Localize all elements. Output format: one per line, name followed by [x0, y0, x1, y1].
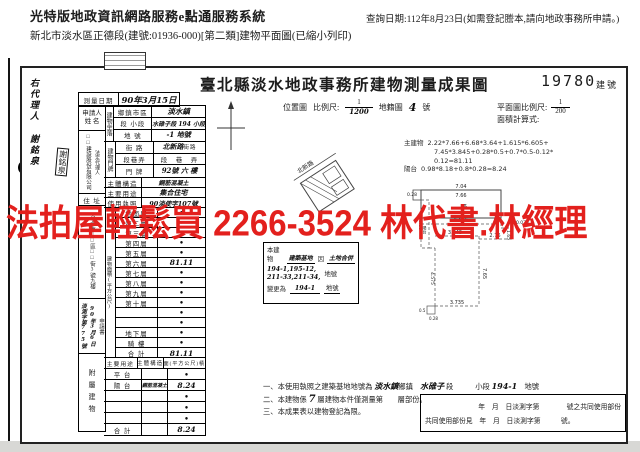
floor-row: •	[116, 308, 205, 318]
document-title: 臺北縣淡水地政事務所建物測量成果圖	[200, 73, 489, 95]
application-receipt-cell: 淡測字第775號 90年3月6日 申請書	[79, 299, 105, 354]
applicant-name-label: 姓 名	[85, 118, 100, 126]
receipt-no-label: 字第	[80, 314, 86, 325]
note-1-section-suffix: 段	[446, 382, 453, 391]
floor-name: 合 計	[116, 348, 158, 358]
note-3-text: 本成果表以建物登記為限。	[278, 407, 366, 416]
applicant-section-label: 申請人	[82, 110, 102, 118]
floor-name: 第八層	[116, 278, 158, 287]
scan-edge-line	[8, 58, 10, 442]
dim-label: 4.575	[429, 272, 435, 285]
floor-row: 第八層•	[116, 278, 205, 288]
system-title: 光特版地政資訊網路服務e點通服務系統	[30, 6, 266, 25]
floor-value: 81.11	[158, 348, 205, 358]
attached-row: •	[104, 413, 205, 424]
attached-structure	[142, 391, 168, 401]
scale-label: 比例尺:	[313, 102, 339, 113]
floor-name	[116, 318, 158, 327]
floor-name: 第六層	[116, 258, 158, 267]
cadastral-map-label: 地籍圖	[379, 102, 403, 113]
attached-structure	[142, 369, 168, 379]
calc-balcony-line: 0.98*8.18+0.8*0.28=8.24	[421, 165, 507, 174]
applicant-name-cell: □□建設股份有限公司 法定代理人	[79, 131, 105, 194]
door-street-label: 街 路	[116, 142, 154, 153]
applicant-column: 申請人 姓 名 □□建設股份有限公司 法定代理人 住 址 台北市□□區□□街3號…	[78, 105, 106, 432]
sheet-unit: 號	[422, 102, 430, 113]
floor-total-row: 合 計81.11	[116, 348, 205, 358]
floor-row: 第六層81.11	[116, 258, 205, 268]
attached-usage	[104, 402, 142, 412]
attached-usage: 陽 台	[104, 380, 142, 390]
scale-fraction: 1 1200	[345, 99, 372, 115]
attached-area: •	[168, 391, 205, 401]
applicant-header: 申請人 姓 名	[79, 106, 105, 131]
attached-area: 8.24	[168, 424, 205, 435]
plan-scale-row: 平面圖比例尺: 1 200	[497, 99, 570, 115]
receipt-no-unit: 號	[80, 343, 86, 349]
margin-agent-note: 右代理人 謝銘泉	[27, 78, 40, 190]
note-2-text-1: 本建物係	[278, 395, 307, 404]
note-1-hw-township: 淡水鎮	[374, 381, 398, 391]
floor-area-vlabel: 建物面積(平方公尺)	[106, 256, 113, 310]
sheet-number: 4	[409, 101, 417, 114]
merge-lots-line1: 194-1,195-12,	[267, 266, 320, 274]
note-1-lot-unit: 地號	[525, 382, 540, 391]
merge-lots-unit: 地號	[324, 270, 337, 279]
site-lot-label: 地 號	[114, 130, 152, 141]
floor-name	[116, 308, 158, 317]
note-1-no: 一、	[263, 382, 278, 391]
dim-label: 7.65	[481, 268, 487, 279]
query-date: 查詢日期:112年8月23日(如需登記謄本,請向地政事務所申請。)	[366, 11, 619, 25]
door-street-cell: 北新路街路	[154, 142, 205, 153]
floor-row: 地下層•	[116, 328, 205, 338]
site-section-value: 水碓子段 194 小段	[152, 118, 205, 129]
floor-value: •	[158, 278, 205, 287]
attached-area: •	[168, 413, 205, 423]
note-1-text: 本使用執照之建築基地地號為	[278, 382, 373, 391]
receipt-stamp-box	[104, 52, 146, 70]
floor-row: 第九層•	[116, 288, 205, 298]
applicant-name-text: □□建設股份有限公司	[84, 134, 92, 190]
floor-value: •	[158, 338, 205, 347]
attached-structure	[142, 402, 168, 412]
site-vlabel: 建物坐落	[104, 112, 113, 136]
attached-total-row: 合 計8.24	[104, 424, 205, 435]
attached-usage: 合 計	[104, 424, 142, 435]
note-2-no: 二、	[263, 395, 278, 404]
floor-value: •	[158, 318, 205, 327]
note-1-hw-section: 水碓子	[420, 381, 444, 391]
attached-area: 8.24	[168, 380, 205, 390]
common-use-line1: 年 月 日淡測字第 號之共同使用部份	[425, 401, 621, 411]
floor-value: •	[158, 248, 205, 257]
door-lane-label: 段巷弄	[116, 154, 154, 165]
dim-label: 0.5	[419, 308, 426, 313]
site-lot-value: -1 地號	[152, 130, 205, 141]
door-group: 建物門牌 街 路北新路街路 段巷弄段 巷 弄 門 牌92號 六 樓	[104, 142, 205, 178]
site-township-label: 鄉鎮市區	[114, 106, 152, 117]
common-use-line2: 共同使用部份見 年 月 日淡測字第 號。	[425, 415, 621, 425]
attached-usage	[104, 413, 142, 423]
receipt-office: 淡測	[80, 303, 86, 314]
floor-row: 第五層•	[116, 248, 205, 258]
applicant-role-text: 法定代理人	[93, 150, 100, 175]
calc-main-line3: 0.12=81.11	[434, 157, 553, 166]
attached-header-area: 面(平方公尺)積	[164, 358, 205, 368]
merge-new-lot: 194-1	[290, 284, 320, 294]
door-number-label: 門 牌	[116, 165, 154, 177]
floor-name: 第十層	[116, 298, 158, 307]
door-street-suffix: 街路	[183, 143, 196, 151]
site-section-label: 段 小段	[114, 118, 152, 129]
location-scale-row: 位置圖 比例尺: 1 1200 地籍圖 4 號	[283, 99, 430, 115]
applicant-seal: 謝銘泉	[55, 148, 69, 177]
site-group: 建物坐落 鄉鎮市區淡水鎮 段 小段水碓子段 194 小段 地 號-1 地號	[104, 106, 205, 142]
foreclosure-ad-overlay: 法拍屋輕鬆買 2266-3524 林代書.林經理	[6, 194, 587, 247]
receipt-number: 淡測字第775號	[79, 303, 87, 349]
building-number: 19780	[541, 72, 596, 90]
attached-usage: 平 台	[104, 369, 142, 379]
attached-structure: 鋼筋混凝土	[142, 380, 168, 390]
floor-row: 第七層•	[116, 268, 205, 278]
floor-name: 騎 樓	[116, 338, 158, 347]
calc-main-line1: 2.22*7.66+6.68*3.64+1.615*6.605+	[428, 139, 549, 148]
north-arrow-icon	[216, 100, 246, 154]
dim-label: 3.735	[450, 300, 464, 306]
floor-name: 地下層	[116, 328, 158, 337]
plan-scale-label: 平面圖比例尺:	[497, 102, 547, 113]
calc-main-line2: 7.45*3.845+0.28*0.5+0.7*0.5-0.12*	[434, 148, 553, 157]
dim-label: 0.28	[429, 316, 438, 321]
floor-row: 第十層•	[116, 298, 205, 308]
note-2-hw-floors: 7	[309, 394, 316, 405]
location-map-label: 位置圖	[283, 102, 307, 113]
attached-building-label-cell: 附屬建物	[79, 354, 105, 431]
door-street-value: 北新路	[162, 142, 183, 152]
merge-p3: 因	[318, 255, 324, 264]
building-number-unit: 建號	[596, 78, 618, 91]
attached-table: 主要用途 主體構造 面(平方公尺)積 平 台• 陽 台鋼筋混凝土8.24 • •…	[104, 358, 205, 435]
floor-row: 騎 樓•	[116, 338, 205, 348]
note-1: 一、本使用執照之建築基地地號為 淡水鎮鄉鎮 水碓子 段 小段 194-1 地號	[263, 381, 539, 393]
scale-denominator: 1200	[345, 107, 372, 115]
calc-balcony-label: 陽台	[404, 165, 417, 174]
door-vlabel: 建物門牌	[105, 148, 114, 172]
attached-header-structure: 主體構造	[138, 358, 164, 368]
floor-value: •	[158, 328, 205, 337]
area-formula-label: 面積計算式:	[497, 114, 539, 125]
merge-p4: 土地合併	[327, 255, 355, 265]
note-2-text-2: 層建物本件僅測量第	[317, 395, 383, 404]
floor-row: •	[116, 318, 205, 328]
merge-lots-line2: 211-33,211-34,	[267, 274, 320, 282]
dim-label: 7.04	[455, 184, 466, 190]
merge-p2: 建築基地	[287, 255, 315, 265]
floor-value: •	[158, 298, 205, 307]
plan-scale-denominator: 200	[551, 107, 570, 115]
merge-new-lot-unit: 地號	[324, 284, 341, 294]
document-subtitle: 新北市淡水區正德段(建號:01936-000)[第二類]建物平面圖(已縮小列印)	[30, 28, 351, 43]
attached-row: •	[104, 402, 205, 413]
merge-p1: 本建物	[267, 246, 284, 264]
scale-numerator: 1	[357, 99, 361, 106]
note-1-township-suffix: 鄉鎮	[398, 382, 413, 391]
attached-header-row: 主要用途 主體構造 面(平方公尺)積	[104, 358, 205, 369]
note-3-no: 三、	[263, 407, 278, 416]
floor-value: •	[158, 268, 205, 277]
door-number-value: 92號 六 樓	[154, 165, 205, 177]
plan-scale-fraction: 1 200	[551, 99, 570, 115]
building-info-table: 建物坐落 鄉鎮市區淡水鎮 段 小段水碓子段 194 小段 地 號-1 地號 建物…	[104, 105, 206, 436]
structure-label: 主體構造	[104, 178, 142, 187]
plan-scale-numerator: 1	[559, 99, 563, 106]
structure-value: 鋼筋混凝土	[142, 178, 205, 187]
note-1-subsection: 小段	[475, 382, 490, 391]
attached-area: •	[168, 402, 205, 412]
attached-row: •	[104, 391, 205, 402]
calc-main-label: 主建物	[404, 139, 424, 148]
floor-value: 81.11	[158, 258, 205, 267]
land-merge-box: 本建物 建築基地 因 土地合併 194-1,195-12, 211-33,211…	[263, 242, 359, 304]
attached-building-vlabel: 附屬建物	[87, 369, 97, 417]
attached-row: 陽 台鋼筋混凝土8.24	[104, 380, 205, 391]
attached-row: 平 台•	[104, 369, 205, 380]
receipt-date: 90年3月6日	[88, 306, 96, 347]
attached-header-usage: 主要用途	[104, 358, 138, 368]
attached-structure	[142, 413, 168, 423]
floor-name: 第九層	[116, 288, 158, 297]
door-lane-value: 段 巷 弄	[154, 154, 205, 165]
floor-name: 第五層	[116, 248, 158, 257]
attached-area: •	[168, 369, 205, 379]
floor-name: 第七層	[116, 268, 158, 277]
area-calculations: 主建物 2.22*7.66+6.68*3.64+1.615*6.605+ 7.4…	[404, 139, 553, 174]
receipt-no: 775	[80, 325, 86, 343]
floor-value: •	[158, 308, 205, 317]
floor-value: •	[158, 288, 205, 297]
note-1-hw-lot: 194-1	[492, 381, 518, 391]
merge-changed-label: 變更為	[267, 285, 286, 294]
structure-row: 主體構造鋼筋混凝土	[104, 178, 205, 188]
attached-structure	[142, 424, 168, 435]
attached-usage	[104, 391, 142, 401]
common-use-box: 年 月 日淡測字第 號之共同使用部份 共同使用部份見 年 月 日淡測字第 號。	[420, 394, 626, 432]
site-township-value: 淡水鎮	[152, 106, 205, 117]
